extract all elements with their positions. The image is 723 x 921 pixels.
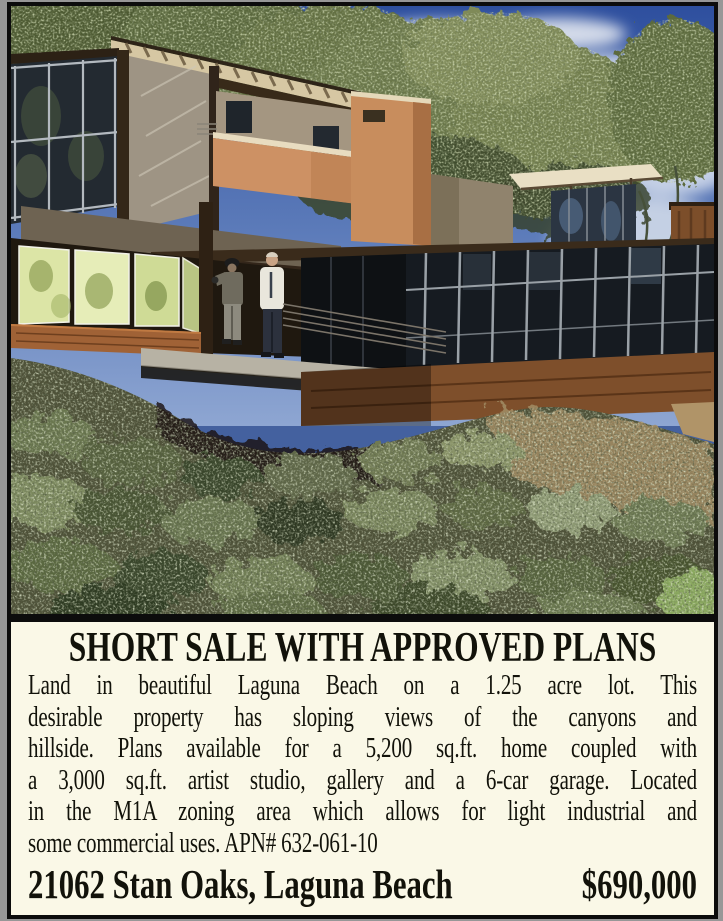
ad-body-line-4: a 3,000 sq.ft. artist studio, gallery an… <box>28 765 697 797</box>
ad-body-line-5: in the M1A zoning area which allows for … <box>28 796 697 828</box>
real-estate-ad: SHORT SALE WITH APPROVED PLANS Land in b… <box>7 2 718 919</box>
ad-text-content: SHORT SALE WITH APPROVED PLANS Land in b… <box>28 626 697 906</box>
page-background: SHORT SALE WITH APPROVED PLANS Land in b… <box>0 0 723 921</box>
ad-body-line-3: hillside. Plans available for a 5,200 sq… <box>28 733 697 765</box>
upper-window-wall <box>11 48 119 224</box>
deck-column <box>199 202 213 358</box>
ad-body: Land in beautiful Laguna Beach on a 1.25… <box>28 670 697 859</box>
property-photo-illustration <box>11 6 714 622</box>
ad-body-line-6: some commercial uses. APN# 632-061-10 <box>28 828 697 860</box>
person-right <box>260 252 284 358</box>
ad-text-panel: SHORT SALE WITH APPROVED PLANS Land in b… <box>11 622 714 907</box>
orange-tower <box>351 91 431 246</box>
ad-body-line-2: desirable property has sloping views of … <box>28 702 697 734</box>
lower-window-band <box>301 244 714 374</box>
property-photo <box>11 6 714 622</box>
ad-address: 21062 Stan Oaks, Laguna Beach <box>28 862 453 906</box>
corner-column <box>117 50 129 241</box>
ad-body-line-1: Land in beautiful Laguna Beach on a 1.25… <box>28 670 697 702</box>
ad-footer-line: 21062 Stan Oaks, Laguna Beach $690,000 <box>28 862 697 906</box>
ad-price: $690,000 <box>582 862 697 906</box>
ad-headline: SHORT SALE WITH APPROVED PLANS <box>28 626 697 670</box>
